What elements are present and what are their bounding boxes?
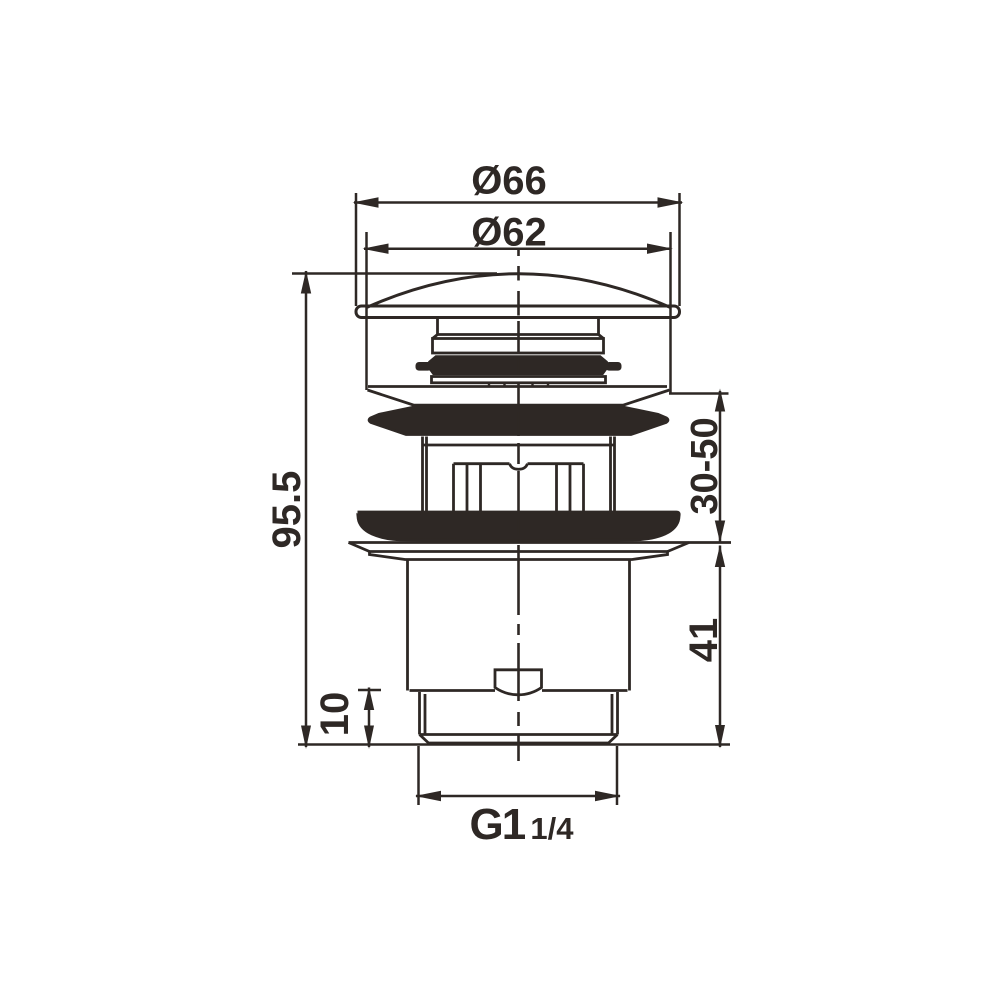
svg-text:Ø66: Ø66 xyxy=(471,159,547,203)
svg-text:95.5: 95.5 xyxy=(265,471,309,549)
svg-text:10: 10 xyxy=(313,692,357,737)
svg-text:30-50: 30-50 xyxy=(684,417,726,514)
svg-text:41: 41 xyxy=(682,618,726,663)
svg-text:Ø62: Ø62 xyxy=(471,211,547,255)
